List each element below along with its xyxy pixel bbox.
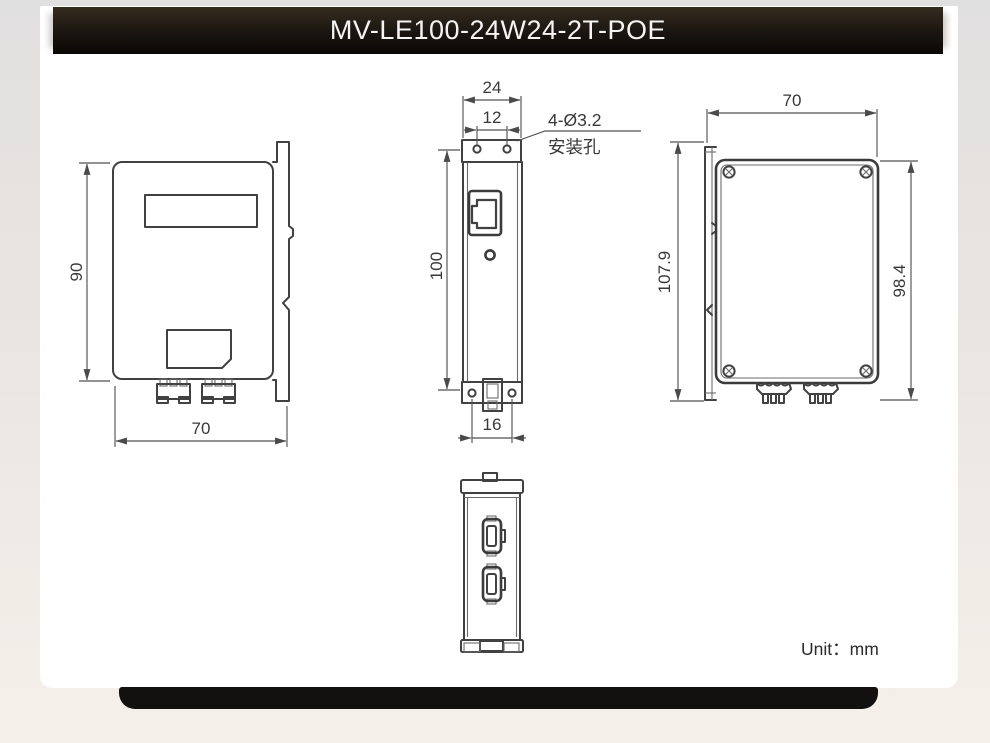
corner-screw xyxy=(860,166,871,177)
device-body-outline xyxy=(716,160,878,383)
callout-text-name: 安装孔 xyxy=(548,137,601,157)
rj45-port xyxy=(469,191,501,235)
din-clip xyxy=(483,379,502,411)
bottom-accent-bar xyxy=(119,687,878,709)
corner-screw xyxy=(723,365,734,376)
dim-label-hole-spacing: 12 xyxy=(483,108,502,127)
connector-plug xyxy=(757,383,791,403)
dim-label-width: 70 xyxy=(783,91,802,110)
dim-label-width: 70 xyxy=(192,419,211,438)
dim-label-overall-width: 24 xyxy=(483,78,502,97)
dimension-90: 90 xyxy=(67,163,110,381)
dimension-107-9: 107.9 xyxy=(655,142,704,401)
dim-label-total-height: 107.9 xyxy=(655,251,674,294)
page-background: { "header": { "title": "MV-LE100-24W24-2… xyxy=(0,0,990,743)
bottom-cap xyxy=(461,640,523,652)
technical-drawing: 90 70 xyxy=(40,6,958,688)
bottom-flange xyxy=(462,382,522,403)
din-rail-profile xyxy=(273,142,293,401)
dimension-100: 100 xyxy=(427,150,460,390)
corner-screw xyxy=(723,166,734,177)
dim-label-height: 90 xyxy=(67,263,86,282)
side-connector xyxy=(483,516,505,556)
dimension-98-4: 98.4 xyxy=(880,161,918,400)
mounting-hole-callout: 4-Ø3.2 安装孔 xyxy=(517,110,641,157)
side-connector xyxy=(483,564,505,604)
led-indicator xyxy=(485,250,494,259)
dimension-70: 70 xyxy=(707,91,877,157)
callout-text-size: 4-Ø3.2 xyxy=(548,110,602,130)
side-view-left: 90 70 xyxy=(67,142,293,447)
device-body-outline xyxy=(463,162,522,382)
din-rail-bracket xyxy=(705,147,716,400)
dim-label-body-height: 98.4 xyxy=(890,264,909,297)
mounting-hole xyxy=(508,389,515,396)
connector-plug xyxy=(804,383,838,403)
corner-screw xyxy=(860,365,871,376)
mounting-hole xyxy=(468,389,475,396)
mounting-hole xyxy=(473,145,480,152)
connector-recess xyxy=(167,330,231,368)
side-view-right: 70 107.9 98.4 xyxy=(655,91,918,403)
unit-label: Unit：mm xyxy=(801,636,879,661)
dimension-16: 16 xyxy=(458,399,526,443)
terminal-block xyxy=(202,379,235,403)
label-recess xyxy=(145,195,257,227)
mounting-hole xyxy=(503,145,510,152)
dim-label-clip-width: 16 xyxy=(483,415,502,434)
terminal-block xyxy=(157,379,190,403)
top-flange xyxy=(462,140,521,162)
cover-inner-line xyxy=(721,165,873,378)
front-view: 24 12 4-Ø3.2 安装孔 100 xyxy=(427,78,641,443)
bottom-view xyxy=(461,473,523,652)
dim-label-height: 100 xyxy=(427,252,446,280)
